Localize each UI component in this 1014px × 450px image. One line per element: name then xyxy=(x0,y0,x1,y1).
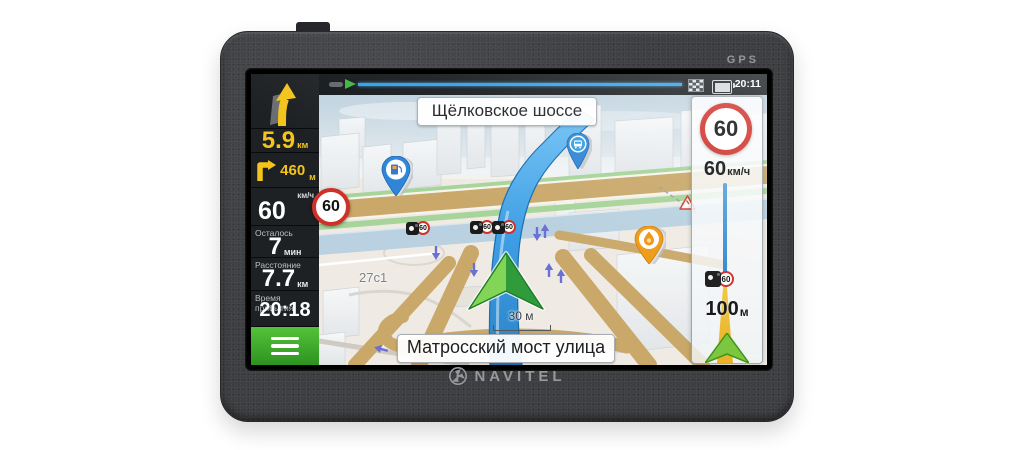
orange-pin-icon xyxy=(632,226,666,264)
navigation-screen[interactable]: 27с1 60 60 60 xyxy=(251,74,767,365)
current-road-banner: Щёлковское шоссе xyxy=(417,97,597,126)
bezel-gps-label: GPS xyxy=(727,54,759,66)
menu-icon xyxy=(271,337,299,341)
building-number-label: 27с1 xyxy=(359,270,387,285)
screen-bezel: 27с1 60 60 60 xyxy=(245,68,773,371)
fuel-station-pin[interactable] xyxy=(379,156,413,201)
navigation-sidebar: 5.9 км 460 м км/ч 60 xyxy=(251,74,319,365)
navitel-logo-icon xyxy=(448,366,468,386)
poi-orange-pin[interactable] xyxy=(632,226,666,269)
navitel-wordmark: NAVITEL xyxy=(474,368,565,385)
fuel-pin-icon xyxy=(379,156,413,196)
vehicle-chevron-icon xyxy=(705,333,749,365)
distance-to-maneuver[interactable]: 5.9 км xyxy=(251,129,319,153)
camera-distance: 100 м xyxy=(692,299,762,319)
route-start-icon xyxy=(329,82,343,87)
main-menu-button[interactable] xyxy=(251,327,319,365)
second-maneuver-panel[interactable]: 460 м xyxy=(251,153,319,188)
maneuver-arrow-icon xyxy=(251,74,319,128)
device-body: GPS xyxy=(220,31,794,422)
speed-camera-marker[interactable]: 60 xyxy=(470,220,494,234)
camera-distance-track xyxy=(723,183,727,277)
clock: 20:11 xyxy=(735,78,761,90)
time-left-panel[interactable]: Осталось 7 мин xyxy=(251,226,319,258)
navigator-device-photo: GPS xyxy=(0,0,1014,450)
upcoming-camera: 60 xyxy=(705,271,734,287)
finish-flag-icon xyxy=(688,79,704,92)
speed-camera-marker[interactable]: 60 xyxy=(406,221,430,235)
speed-camera-marker[interactable]: 60 xyxy=(492,220,516,234)
map-scale-bracket xyxy=(493,325,551,331)
camera-icon xyxy=(470,221,483,234)
next-maneuver-panel[interactable] xyxy=(251,74,319,129)
current-speed-panel[interactable]: км/ч 60 xyxy=(251,188,319,226)
map-scale-label: 30 м xyxy=(491,309,551,323)
route-progress-line xyxy=(358,83,682,86)
speed-camera-panel: 60 60 км/ч 60 100 м xyxy=(691,96,763,364)
speed-limit-sign: 60 xyxy=(700,103,752,155)
arrival-time-panel[interactable]: Время прибытия 20:18 xyxy=(251,291,319,327)
speed-limit-caption: 60 км/ч xyxy=(692,159,762,179)
next-road-banner: Матросский мост улица xyxy=(397,334,615,363)
speed-limit-badge: 60 xyxy=(312,188,350,226)
bus-stop-pin[interactable] xyxy=(564,133,592,174)
status-bar: 20:11 xyxy=(319,74,767,95)
bus-pin-icon xyxy=(564,133,592,169)
camera-icon xyxy=(705,271,721,287)
camera-icon xyxy=(406,222,419,235)
battery-icon xyxy=(712,80,732,94)
camera-icon xyxy=(492,221,505,234)
distance-left-panel[interactable]: Расстояние 7.7 км xyxy=(251,258,319,291)
route-position-arrow-icon xyxy=(345,79,356,89)
turn-right-icon xyxy=(254,158,278,182)
